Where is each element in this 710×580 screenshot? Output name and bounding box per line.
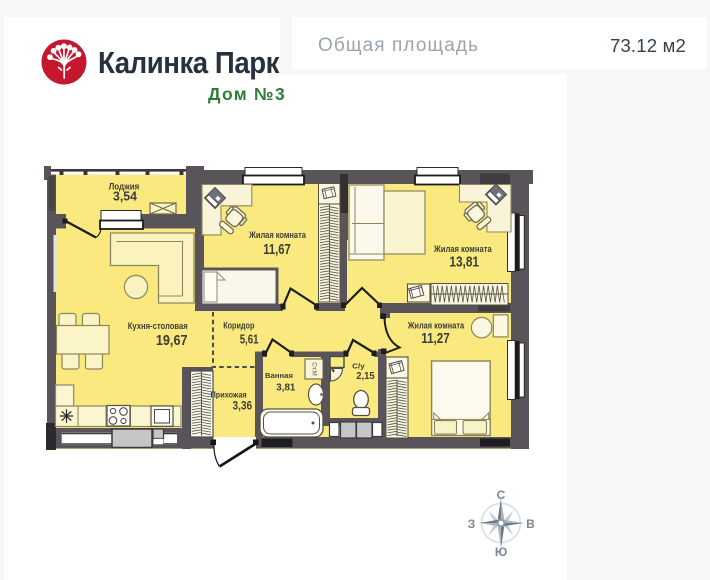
svg-text:19,67: 19,67	[156, 332, 188, 349]
svg-text:Жилая комната: Жилая комната	[248, 230, 306, 240]
svg-text:3,36: 3,36	[232, 401, 252, 413]
svg-text:Кухня-столовая: Кухня-столовая	[128, 321, 188, 331]
svg-text:11,67: 11,67	[263, 242, 291, 258]
svg-text:Жилая комната: Жилая комната	[433, 244, 492, 254]
svg-text:В: В	[526, 517, 535, 531]
svg-text:Ю: Ю	[495, 545, 507, 559]
svg-text:Ст.М: Ст.М	[310, 362, 317, 376]
svg-text:Ванная: Ванная	[265, 371, 293, 380]
svg-text:З: З	[468, 517, 476, 531]
svg-text:2,15: 2,15	[356, 371, 375, 382]
svg-text:С/у: С/у	[352, 361, 365, 370]
svg-text:Коридор: Коридор	[223, 320, 255, 330]
svg-text:С: С	[497, 488, 506, 502]
svg-text:Жилая комната: Жилая комната	[407, 320, 464, 330]
svg-text:11,27: 11,27	[421, 331, 450, 347]
svg-text:3,54: 3,54	[113, 189, 137, 203]
svg-text:Прихожая: Прихожая	[211, 390, 247, 400]
svg-text:3,81: 3,81	[276, 382, 295, 394]
svg-text:5,61: 5,61	[240, 333, 259, 347]
svg-text:13,81: 13,81	[449, 254, 479, 271]
